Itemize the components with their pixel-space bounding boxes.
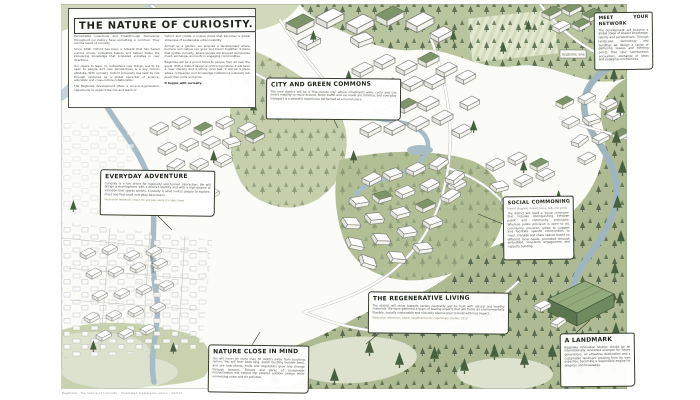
intro-paragraph: Our desire to learn, to understand new t… [74, 65, 160, 83]
callout-social-commoning: SOCIAL COMMONING District diagram: share… [503, 196, 575, 260]
callout-body: The development will become a global sta… [598, 28, 648, 62]
illustrated-masterplan-page: begbroke lane woodstock road oxford cana… [0, 0, 700, 400]
callout-heading: EVERYDAY ADVENTURE [105, 172, 211, 180]
intro-paragraph: Begbroke will be a proud home to people … [165, 61, 251, 79]
callout-caption: Illustration references: timber neighbou… [372, 317, 504, 321]
intro-paragraph: Oxford and create a unique place that be… [165, 35, 251, 42]
intro-paragraph: Remarkable inventions and breakthrough d… [74, 35, 160, 46]
credit-line: Begbroke · the nature of curiosity · ill… [62, 391, 182, 395]
callout-regenerative-living: THE REGENERATIVE LIVING The district wil… [368, 291, 509, 334]
intro-closing-line: It begins with curiosity. [165, 82, 251, 86]
callout-body: You will never be more than 50 meters aw… [212, 357, 304, 380]
road-label: begbroke lane [562, 53, 585, 57]
page-title: THE NATURE OF CURIOSITY. [74, 16, 256, 33]
callout-meet-your-network: MEET YOUR NETWORK The development will b… [594, 12, 654, 70]
intro-paragraph: Since 1096, Oxford has been a hotspot th… [74, 48, 160, 62]
callout-body: The new district will be a 'five-minute … [270, 90, 396, 102]
pond [407, 145, 433, 155]
callout-city-green-commons: CITY AND GREEN COMMONS The new district … [266, 77, 401, 120]
title-block: THE NATURE OF CURIOSITY. Remarkable inve… [68, 8, 256, 108]
callout-heading: SOCIAL COMMONING [507, 198, 569, 206]
callout-heading: THE REGENERATIVE LIVING [373, 294, 505, 303]
callout-body: The district will need a 'social commons… [507, 211, 569, 249]
callout-body: Begbroke Innovation District should be a… [564, 345, 630, 368]
callout-nature-close-in-mind: NATURE CLOSE IN MIND You will never be m… [208, 344, 310, 393]
intro-paragraph: Almost as a garden, we propose a develop… [165, 45, 251, 59]
intro-left-column: Remarkable inventions and breakthrough d… [74, 35, 160, 95]
callout-heading: CITY AND GREEN COMMONS [271, 80, 397, 89]
callout-caption: Illustration reference: street life and … [104, 198, 210, 203]
callout-heading: MEET YOUR NETWORK [598, 14, 648, 27]
callout-body: Curiosity is a key driver for ingenuity … [104, 182, 210, 198]
callout-heading: A LANDMARK [564, 335, 630, 345]
callout-everyday-adventure: EVERYDAY ADVENTURE Curiosity is a key dr… [100, 169, 216, 216]
callout-heading: NATURE CLOSE IN MIND [213, 348, 305, 356]
intro-paragraph: The Begbroke development offers a once-i… [74, 85, 160, 92]
callout-a-landmark: A LANDMARK Begbroke Innovation District … [560, 333, 636, 387]
callout-body: The district will strive towards carbon … [372, 304, 504, 316]
intro-right-column: Oxford and create a unique place that be… [165, 35, 251, 95]
